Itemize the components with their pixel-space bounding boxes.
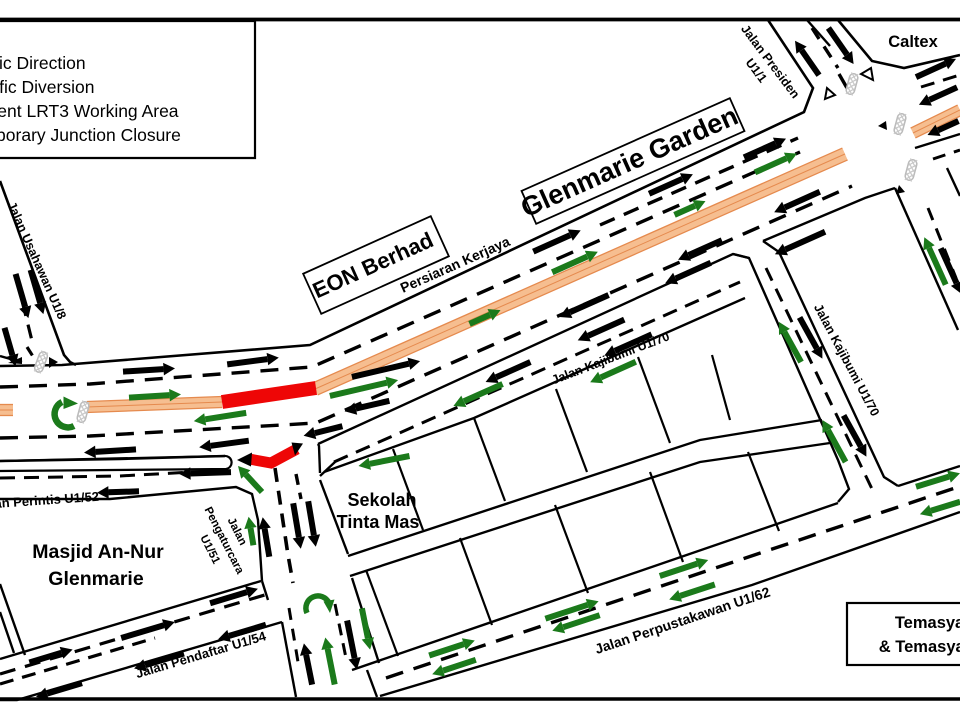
svg-text:Traffic Direction: Traffic Direction [0, 53, 86, 73]
svg-text:Caltex: Caltex [888, 33, 938, 51]
svg-text:Temporary Junction Closure: Temporary Junction Closure [0, 125, 181, 145]
svg-text:Sekolah: Sekolah [347, 490, 416, 510]
svg-text:Glenmarie: Glenmarie [48, 568, 144, 590]
svg-text:Tinta Mas: Tinta Mas [337, 512, 420, 532]
svg-text:Masjid An-Nur: Masjid An-Nur [32, 541, 164, 563]
svg-text:& Temasya Link: & Temasya Link [879, 638, 960, 656]
svg-text:Permanent LRT3 Working Area: Permanent LRT3 Working Area [0, 101, 179, 121]
svg-text:Temasya 18: Temasya 18 [895, 614, 960, 632]
svg-text:Traffic Diversion: Traffic Diversion [0, 77, 94, 97]
